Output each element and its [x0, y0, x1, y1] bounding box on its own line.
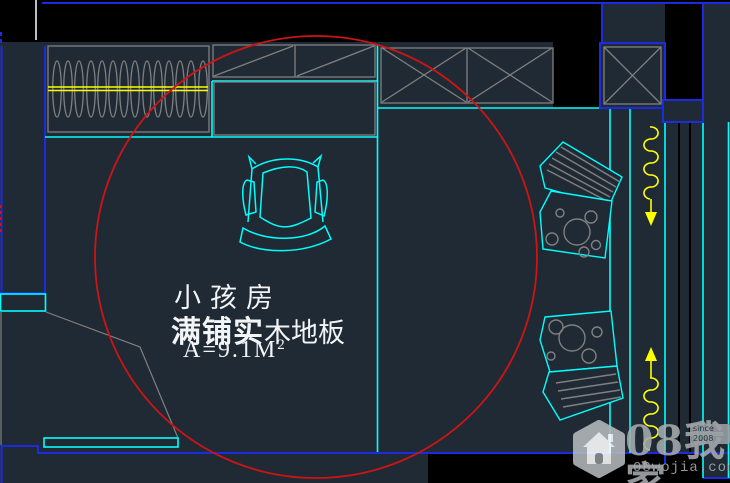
watermark-site: 08wojia.com [633, 460, 730, 476]
floor-plan-svg [0, 0, 730, 483]
area-exponent: 2 [277, 337, 285, 353]
door-frame [1, 294, 46, 311]
window-pier-box [663, 100, 703, 122]
area-label: A=9.1M2 [183, 337, 285, 364]
window-sill [44, 438, 178, 447]
pillar-xbox [600, 43, 665, 108]
house-icon [572, 419, 626, 479]
watermark-badge: since 2008 [690, 424, 730, 444]
floor-plan-canvas: 小孩房 满铺实木地板 A=9.1M2 08我家 08wojia.com sinc… [0, 0, 730, 483]
area-value: A=9.1M [183, 337, 277, 363]
